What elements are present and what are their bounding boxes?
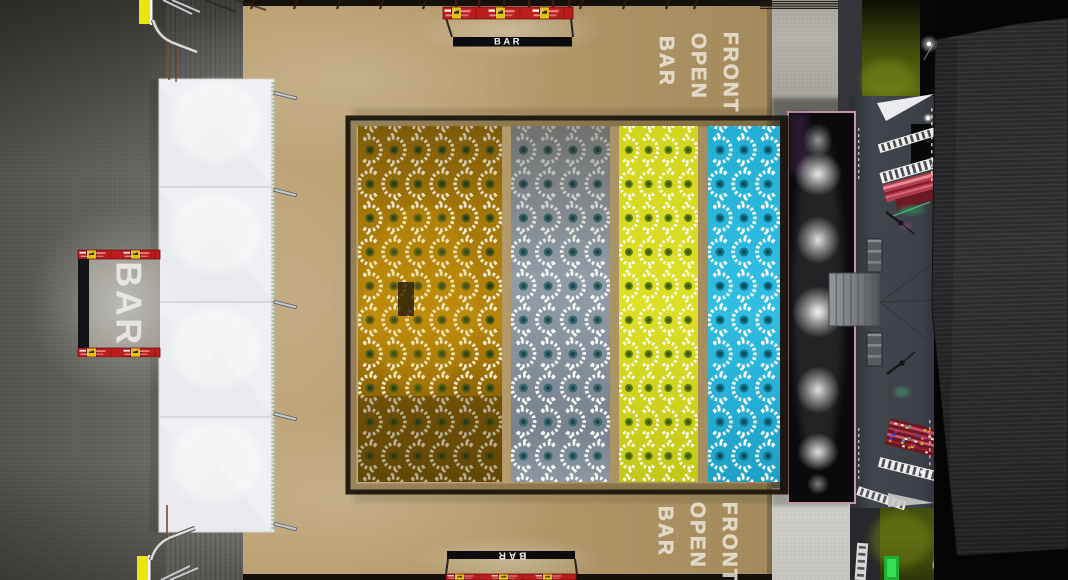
svg-text:BAR: BAR [496,550,527,561]
svg-text:BAR: BAR [494,37,522,48]
svg-text:BAR: BAR [109,261,150,347]
svg-text:FRONT: FRONT [719,32,742,114]
svg-text:OPEN: OPEN [686,502,709,569]
svg-text:BAR: BAR [654,506,677,557]
svg-text:BAR: BAR [655,36,678,87]
svg-text:OPEN: OPEN [687,33,710,100]
svg-text:FRONT: FRONT [718,502,741,580]
